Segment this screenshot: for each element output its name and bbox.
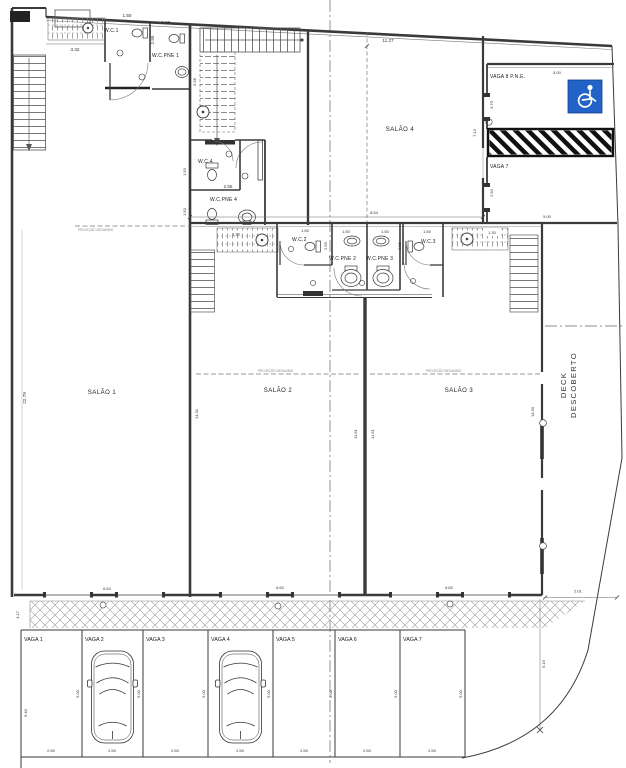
dim-9-58: 9.58 (192, 77, 197, 86)
dim-1-30: 1.30 (232, 232, 241, 237)
door-leaf (258, 140, 263, 180)
label-salao1: SALÃO 1 (88, 389, 117, 396)
dim-5-00: 5.00 (201, 689, 206, 698)
drain-symbol (100, 602, 106, 608)
label-wcpne4: W.C.PNE 4 (210, 197, 237, 203)
dim-1-50: 1.50 (182, 167, 187, 176)
dim-2-50: 2.50 (300, 748, 309, 753)
dim-11-61: 11.61 (370, 428, 375, 438)
dim-11-61: 11.61 (353, 428, 358, 438)
sink-wcpne2 (344, 236, 360, 246)
floor-plan-canvas: 3.32 W.C.1 1.50 1.50 2.55 W.C.PNE 1 (0, 0, 626, 768)
plan-background (0, 0, 626, 768)
dim-2-55: 2.55 (150, 35, 155, 44)
label-wc3: W.C.3 (421, 239, 436, 245)
stair-flight-left (14, 55, 46, 150)
dim-5-19: 5.19 (541, 659, 546, 668)
label-vaga8-pne: VAGA 8 P.N.E. (490, 74, 525, 80)
label-vaga-2: VAGA 2 (85, 637, 104, 643)
dim-1-50: 1.50 (381, 229, 390, 234)
sink-wcpne1 (176, 67, 189, 78)
bench-solid (303, 291, 323, 296)
dim-2-50: 2.50 (236, 748, 245, 753)
dim-2-55: 2.55 (224, 184, 233, 189)
label-wc2: W.C.2 (292, 237, 307, 243)
dim-6-40: 6.40 (23, 708, 28, 717)
dim-5-00: 5.00 (75, 689, 80, 698)
label-deck-line1: DECK (559, 372, 568, 398)
label-vaga-3: VAGA 3 (146, 637, 165, 643)
dim-5-00: 5.00 (266, 689, 271, 698)
dim-8-54: 8.54 (370, 210, 379, 215)
dim-5-00: 5.00 (328, 689, 333, 698)
dim-22-79: 22.79 (22, 392, 27, 404)
label-deck-line2: DESCOBERTO (569, 352, 578, 418)
dim-1-50: 1.50 (342, 229, 351, 234)
dim-1-50: 1.50 (182, 207, 187, 216)
label-vaga7-upper: VAGA 7 (490, 164, 509, 170)
stair-landing-solid (10, 11, 30, 22)
void-hatch-left (217, 228, 278, 252)
toilet-wcpne1 (169, 34, 185, 43)
label-vaga-5: VAGA 5 (276, 637, 295, 643)
label-salao2: SALÃO 2 (264, 387, 293, 394)
label-wc4: W.C.4 (198, 159, 213, 165)
dim-11-27: 11.27 (382, 38, 394, 43)
stair-flight-left-mid (191, 250, 215, 312)
dim-1-50: 1.50 (301, 228, 310, 233)
dim-2-50: 2.50 (108, 748, 117, 753)
sink-wcpne3 (373, 236, 389, 246)
dim-1-50: 1.50 (162, 20, 171, 25)
floor-plan-svg: 3.32 W.C.1 1.50 1.50 2.55 W.C.PNE 1 (0, 0, 626, 768)
sidewalk (30, 601, 585, 628)
car-top-view (88, 651, 138, 743)
dim-2-50: 2.50 (47, 748, 56, 753)
toilet-wc1 (132, 28, 148, 38)
dim-5-00: 5.00 (136, 689, 141, 698)
dim-14-31: 14.31 (194, 408, 199, 419)
void-hatch-top-left (48, 18, 105, 40)
dim-2-55: 2.55 (323, 241, 328, 250)
dim-6-64: 6.64 (103, 586, 112, 591)
dim-2-55: 2.55 (397, 241, 402, 250)
dim-1-50: 1.50 (123, 13, 132, 18)
dim-5-00: 5.00 (393, 689, 398, 698)
label-vaga-4: VAGA 4 (211, 637, 230, 643)
drain-symbol (447, 601, 453, 607)
dim-5-00: 5.00 (458, 689, 463, 698)
label-vaga-7: VAGA 7 (403, 637, 422, 643)
dim-6-60: 6.60 (276, 585, 285, 590)
label-wcpne3: W.C.PNE 3 (366, 256, 393, 262)
label-vaga-6: VAGA 6 (338, 637, 357, 643)
stair-flight-right (510, 235, 538, 312)
car-top-view (216, 651, 266, 743)
dim-2-50: 2.50 (363, 748, 372, 753)
dim-2-50: 2.50 (489, 188, 494, 197)
downspout-symbol (540, 420, 547, 427)
dim-7-13: 7.13 (472, 128, 477, 137)
dim-2-50: 2.50 (171, 748, 180, 753)
label-wc1: W.C.1 (104, 28, 119, 34)
label-wcpne1: W.C.PNE 1 (152, 53, 179, 59)
handicap-sign (568, 80, 602, 113)
drain-symbol (275, 603, 281, 609)
crosswalk-hatch (488, 129, 613, 156)
label-wcpne2: W.C.PNE 2 (329, 256, 356, 262)
dim-2-01: 2.01 (574, 589, 583, 594)
dim-2-50: 2.50 (428, 748, 437, 753)
dim-1-50: 1.50 (423, 229, 432, 234)
dim-4-17: 4.17 (15, 610, 20, 619)
dim-1-30: 1.30 (488, 230, 497, 235)
dim-3-32: 3.32 (71, 47, 80, 52)
dim-14-30: 14.30 (530, 406, 535, 417)
label-salao3: SALÃO 3 (445, 387, 474, 394)
note-projecao-mezanino: PROJEÇÃO MEZANINO (78, 227, 114, 232)
note-projecao-mezanino: PROJEÇÃO MEZANINO (426, 368, 462, 373)
label-salao4: SALÃO 4 (386, 126, 415, 133)
label-vaga-1: VAGA 1 (24, 637, 43, 643)
note-projecao-mezanino: PROJEÇÃO MEZANINO (258, 368, 294, 373)
dim-3-70: 3.70 (489, 100, 494, 109)
dim-5-00: 5.00 (553, 70, 562, 75)
dim-6-60: 6.60 (445, 585, 454, 590)
downspout-symbol (540, 543, 547, 550)
dim-5-00: 5.00 (543, 214, 552, 219)
